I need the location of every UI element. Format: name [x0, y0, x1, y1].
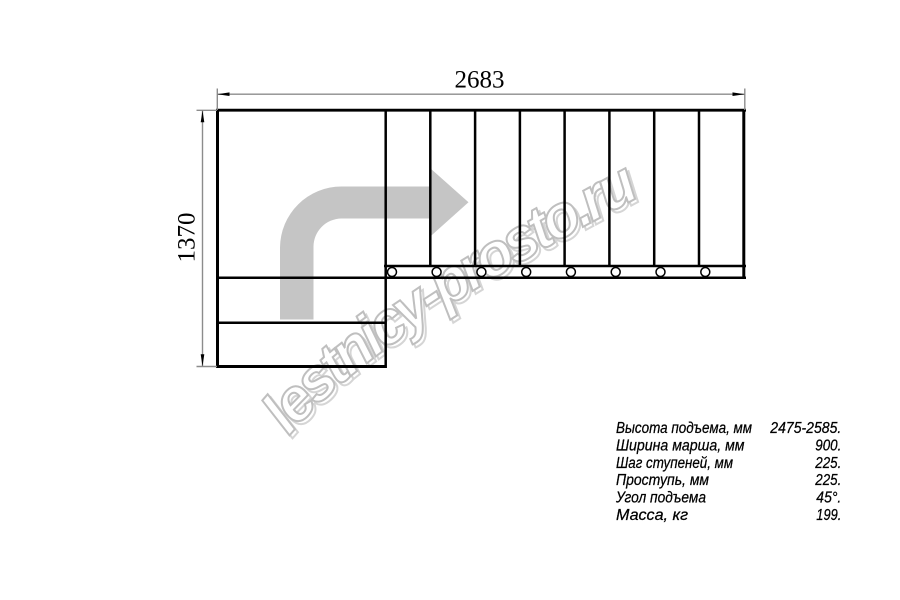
svg-text:199.: 199.	[816, 507, 841, 524]
svg-text:1370: 1370	[174, 213, 201, 263]
svg-text:Ширина марша, мм: Ширина марша, мм	[616, 437, 745, 454]
svg-text:225.: 225.	[814, 455, 841, 472]
svg-text:45°.: 45°.	[816, 490, 841, 507]
svg-text:Масса, кг: Масса, кг	[616, 507, 688, 524]
svg-text:Шаг ступеней, мм: Шаг ступеней, мм	[616, 455, 733, 472]
svg-text:Проступь, мм: Проступь, мм	[616, 472, 709, 489]
svg-text:Высота подъема, мм: Высота подъема, мм	[616, 420, 752, 437]
svg-text:225.: 225.	[814, 472, 841, 489]
svg-text:900.: 900.	[815, 437, 841, 454]
svg-text:Угол подъема: Угол подъема	[615, 490, 706, 507]
svg-text:2683: 2683	[455, 67, 505, 94]
svg-text:2475-2585.: 2475-2585.	[769, 420, 841, 437]
